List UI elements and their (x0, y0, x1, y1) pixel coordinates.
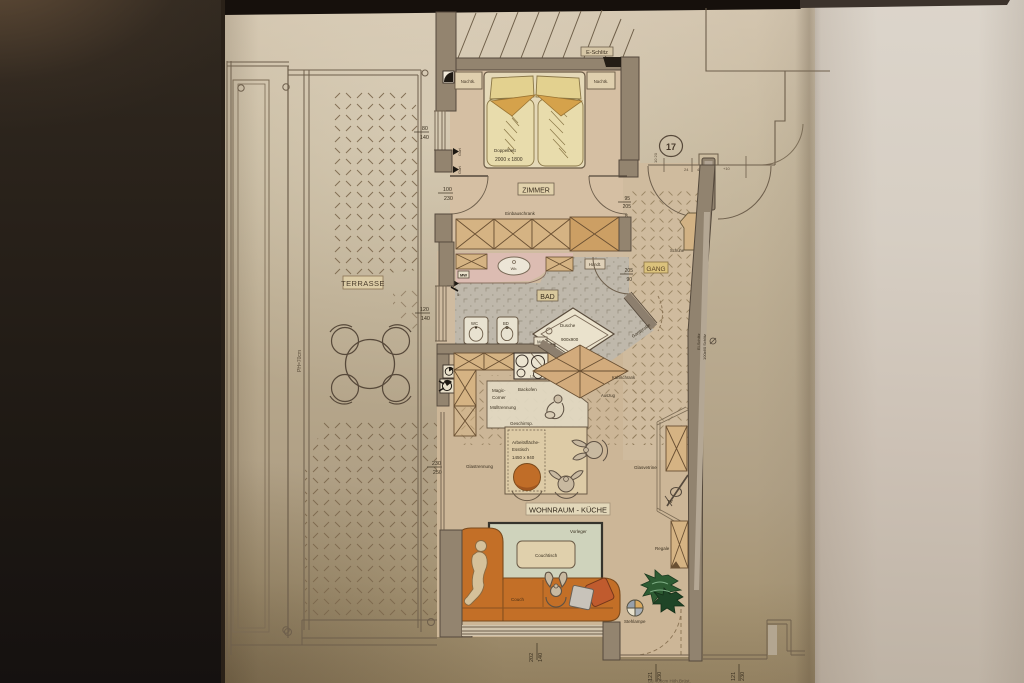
svg-text:230: 230 (740, 672, 746, 681)
svg-text:Couch: Couch (511, 597, 525, 602)
svg-text:Auszug: Auszug (601, 393, 616, 398)
svg-text:Backofen: Backofen (518, 387, 537, 392)
svg-text:900x900: 900x900 (561, 337, 579, 342)
svg-text:140: 140 (420, 135, 429, 141)
svg-text:95: 95 (624, 196, 630, 202)
svg-text:2000 x 1800: 2000 x 1800 (495, 157, 523, 163)
svg-text:100x60 Schlitz: 100x60 Schlitz (702, 334, 707, 360)
svg-text:Arbeitsfläche-: Arbeitsfläche- (512, 440, 540, 445)
svg-text:E-Schlitz: E-Schlitz (586, 50, 608, 56)
svg-text:Dusche: Dusche (560, 323, 576, 328)
svg-text:Mülltrennung: Mülltrennung (490, 405, 517, 410)
svg-text:Couchtisch: Couchtisch (535, 553, 558, 558)
svg-text:BD: BD (503, 321, 509, 326)
svg-text:Gurt: Gurt (457, 147, 462, 156)
svg-text:Vorleger: Vorleger (570, 529, 587, 534)
svg-text:Gurt: Gurt (457, 165, 462, 174)
svg-text:Schuhe: Schuhe (670, 248, 685, 253)
svg-text:Bü 400cm Höh.Brüst.: Bü 400cm Höh.Brüst. (648, 679, 691, 683)
svg-text:Esstisch: Esstisch (512, 447, 529, 452)
svg-text:230: 230 (444, 196, 453, 202)
svg-text:El-Schlitz: El-Schlitz (696, 333, 701, 350)
svg-text:GANG: GANG (646, 266, 665, 273)
svg-text:Corner: Corner (492, 395, 506, 400)
svg-text:PH=70cm: PH=70cm (297, 350, 303, 372)
svg-text:121: 121 (731, 672, 737, 681)
svg-text:+10: +10 (723, 166, 731, 171)
svg-text:Stehlampe: Stehlampe (624, 619, 646, 624)
svg-text:10 20: 10 20 (653, 152, 658, 163)
svg-text:BAD: BAD (540, 294, 554, 301)
svg-text:Kühlschrank: Kühlschrank (612, 375, 636, 380)
svg-text:24: 24 (684, 167, 689, 172)
svg-text:Glasvetrine: Glasvetrine (634, 465, 657, 470)
svg-text:140: 140 (421, 316, 430, 322)
svg-text:Nachtk.: Nachtk. (461, 79, 476, 84)
svg-text:100: 100 (443, 187, 452, 193)
svg-text:TERRASSE: TERRASSE (341, 279, 385, 288)
svg-text:90: 90 (626, 277, 632, 283)
svg-text:L3: L3 (530, 375, 534, 379)
svg-text:ZIMMER: ZIMMER (522, 188, 550, 195)
svg-text:TV: TV (667, 499, 673, 504)
svg-text:Geschirrsp.: Geschirrsp. (510, 421, 533, 426)
svg-text:230: 230 (432, 461, 441, 467)
svg-text:WC: WC (471, 321, 478, 326)
svg-text:140: 140 (538, 653, 544, 662)
svg-text:205: 205 (625, 268, 634, 274)
svg-text:Glastrennung: Glastrennung (466, 464, 494, 469)
svg-text:Nachtk.: Nachtk. (594, 79, 609, 84)
svg-text:120: 120 (420, 307, 429, 313)
svg-text:202: 202 (529, 653, 535, 662)
svg-text:Einbauschrank: Einbauschrank (505, 211, 536, 216)
svg-text:Magic-: Magic- (492, 388, 506, 393)
svg-text:205: 205 (623, 204, 632, 210)
svg-text:Doppelbett: Doppelbett (494, 148, 517, 153)
svg-text:Handt.: Handt. (589, 262, 601, 267)
svg-text:WOHNRAUM - KÜCHE: WOHNRAUM - KÜCHE (529, 507, 607, 515)
svg-text:MW: MW (460, 273, 467, 278)
svg-text:80: 80 (422, 126, 428, 132)
svg-text:Wb.: Wb. (511, 267, 518, 271)
svg-text:Regale: Regale (655, 546, 670, 551)
svg-text:1450 x 940: 1450 x 940 (512, 455, 535, 460)
svg-text:17: 17 (666, 142, 676, 152)
